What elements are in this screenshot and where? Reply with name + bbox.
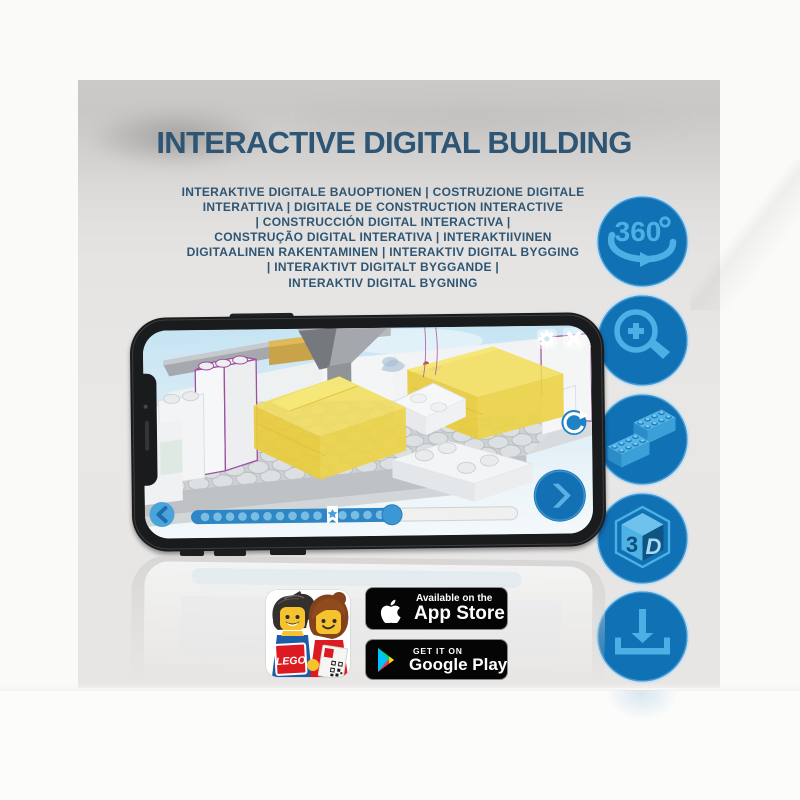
svg-text:360: 360 [615,216,662,247]
svg-text:D: D [646,534,662,559]
svg-text:3: 3 [626,532,638,557]
svg-text:LEGO: LEGO [276,654,306,668]
